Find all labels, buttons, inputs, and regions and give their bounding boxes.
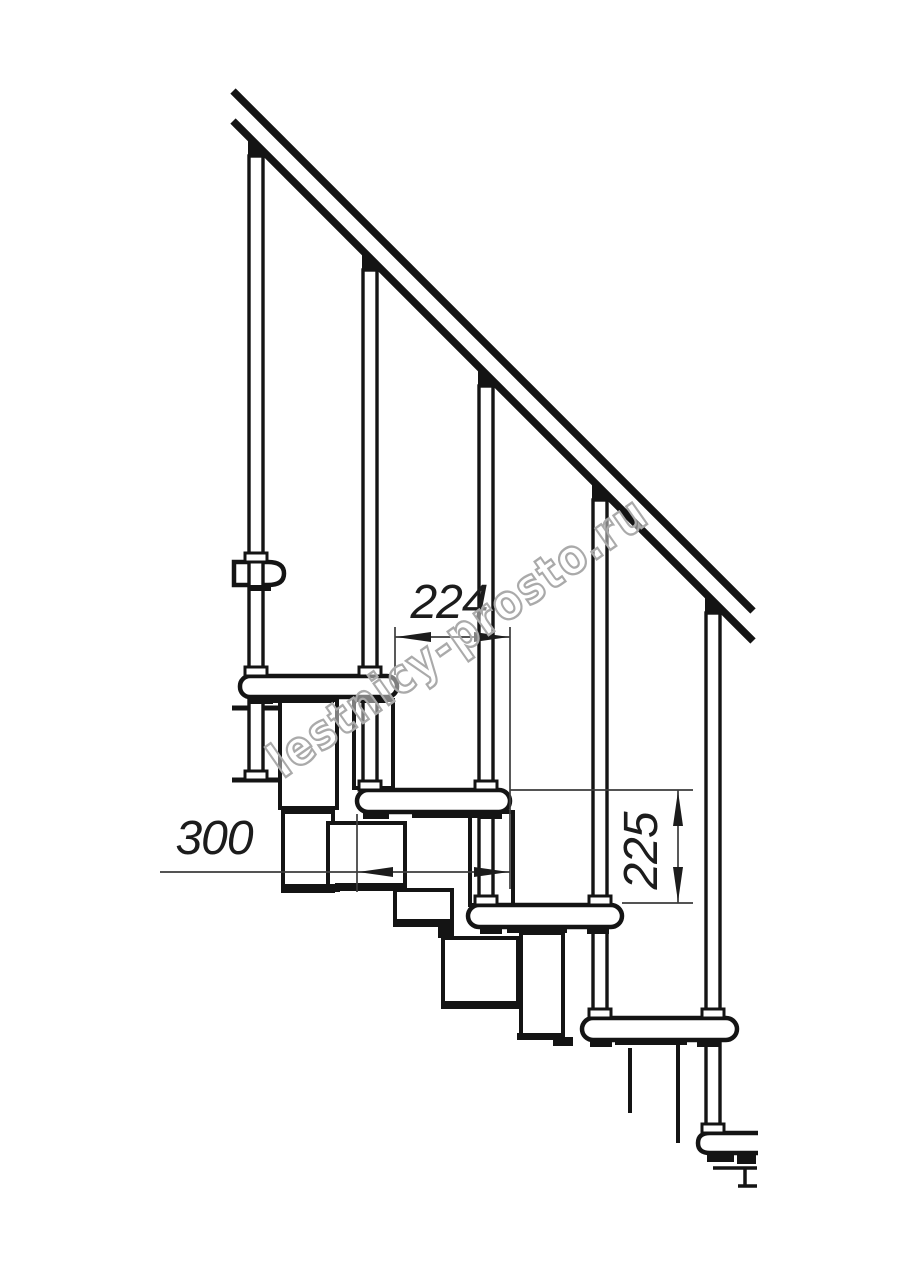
collar-joint	[475, 781, 497, 790]
arrowhead-icon	[673, 791, 683, 826]
collar-joint	[589, 1009, 611, 1018]
staircase-drawing-page: 224 300 225 lestnicy-prosto.ru	[0, 0, 914, 1280]
collar-joint	[245, 771, 267, 780]
arrowhead-icon	[673, 867, 683, 902]
collar-joint	[359, 781, 381, 790]
collar-joint	[475, 896, 497, 905]
staircase-drawing: 224 300 225 lestnicy-prosto.ru	[0, 0, 914, 1280]
tread-clamp	[697, 1040, 720, 1047]
collar-joint	[702, 1124, 724, 1133]
stringer-sleeve-box	[521, 933, 563, 1038]
collar-joint	[245, 667, 267, 676]
tread	[582, 1018, 737, 1040]
tread-underline	[507, 927, 567, 933]
module-bottom-accent	[283, 884, 340, 892]
support-pipe	[706, 1042, 720, 1131]
module-bottom-accent	[335, 883, 403, 891]
module-bottom-accent	[438, 922, 454, 938]
dimension-label-300: 300	[175, 812, 253, 865]
tread	[357, 790, 510, 812]
tread-clamp	[587, 927, 609, 934]
tread-clamp	[248, 585, 271, 591]
tread-underline	[412, 812, 480, 818]
baluster	[249, 156, 263, 676]
tread-clamp	[737, 1155, 756, 1164]
stringer-module-box	[443, 938, 518, 1007]
tread-clamp	[590, 1040, 612, 1047]
support-pipe	[479, 814, 493, 903]
module-bottom-accent	[553, 1037, 573, 1046]
collar-joint	[245, 553, 267, 562]
support-pipe	[249, 700, 263, 776]
tread-clamp	[480, 927, 502, 934]
stringer-module-box	[283, 812, 333, 891]
tread-clamp	[363, 812, 389, 819]
stringer-module-box	[328, 823, 405, 888]
tread-clamp	[707, 1153, 734, 1162]
tread	[468, 905, 622, 927]
dimension-label-225: 225	[615, 811, 668, 890]
module-bottom-accent	[443, 1001, 517, 1009]
tread-clamp	[478, 812, 502, 819]
collar-joint	[589, 896, 611, 905]
baluster	[706, 613, 720, 1018]
support-pipe	[593, 929, 607, 1016]
tread-lower-partial	[698, 1133, 758, 1153]
baluster	[363, 270, 377, 676]
tread-underline	[615, 1038, 687, 1045]
collar-joint	[702, 1009, 724, 1018]
